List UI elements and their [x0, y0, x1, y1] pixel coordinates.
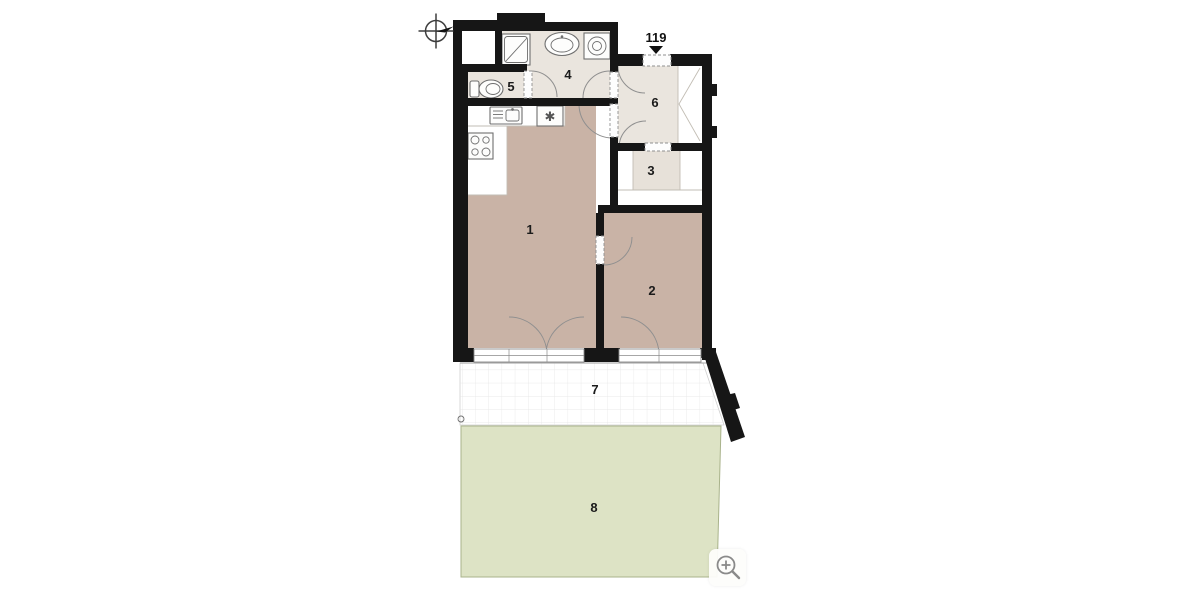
room-label-5: 5	[507, 79, 514, 94]
floor-plan: ✱	[0, 0, 1200, 600]
stove-cooktop	[468, 133, 493, 159]
toilet	[470, 80, 503, 98]
appliance-marker: ✱	[545, 110, 556, 125]
room-label-4: 4	[564, 67, 572, 82]
shaft-niche	[462, 31, 495, 64]
unit-number: 119	[646, 30, 667, 45]
room-label-2: 2	[648, 283, 655, 298]
room-label-6: 6	[651, 95, 658, 110]
room-label-7: 7	[591, 382, 598, 397]
shower	[502, 34, 530, 65]
room-hall-floor	[618, 66, 702, 143]
appliance-marker-box: ✱	[537, 106, 563, 126]
entrance-door	[643, 55, 671, 66]
room-label-8: 8	[590, 500, 597, 515]
room-label-3: 3	[647, 163, 654, 178]
entrance-arrow-icon	[649, 46, 663, 54]
floor-plan-page: ✱	[0, 0, 1200, 600]
compass-icon	[419, 14, 454, 49]
zoom-in-button[interactable]	[709, 549, 746, 586]
bathroom-sink	[545, 33, 579, 56]
room-storage-floor	[618, 151, 702, 205]
room-label-1: 1	[526, 222, 533, 237]
kitchen-sink	[490, 107, 522, 124]
washing-machine	[584, 33, 610, 59]
room-bedroom-floor	[604, 213, 702, 348]
magnifier-plus-icon	[709, 549, 746, 586]
entrance-marker: 119	[646, 30, 667, 54]
